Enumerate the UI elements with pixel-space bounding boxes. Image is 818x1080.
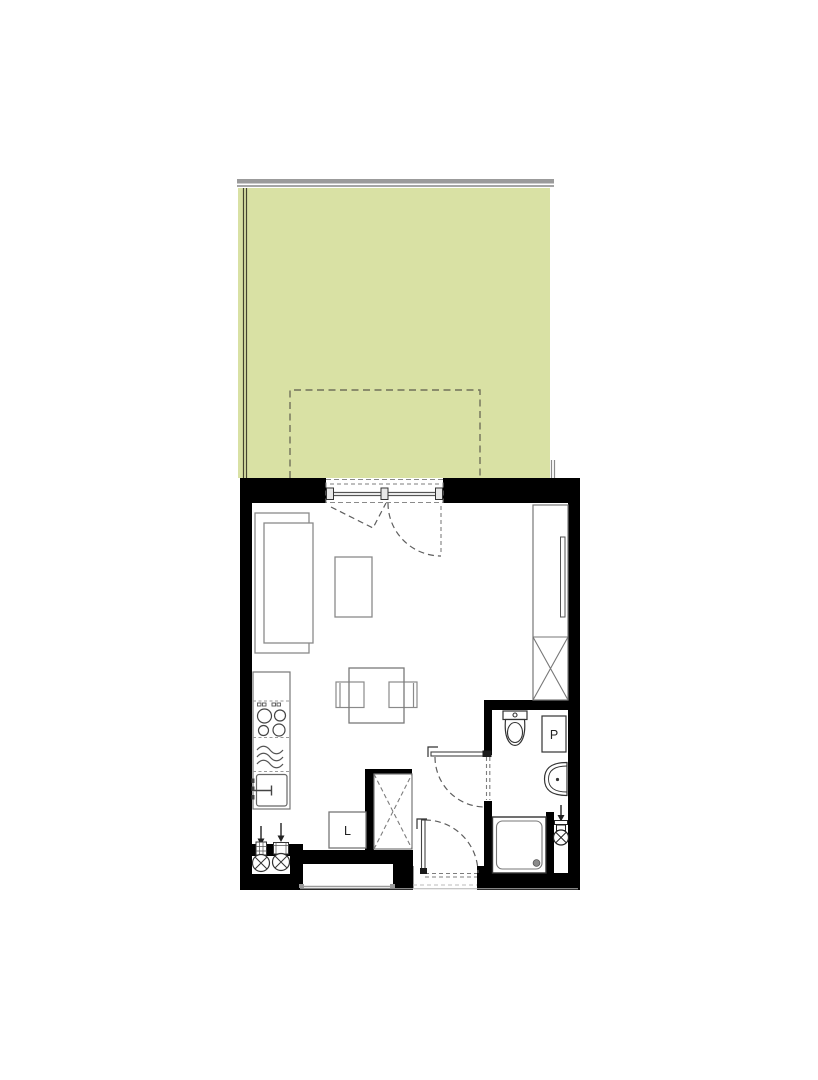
- toilet-cistern: [503, 711, 527, 720]
- garden-lawn: [238, 188, 550, 478]
- wall-top-right: [443, 478, 580, 503]
- bathroom-door-hinge: [483, 751, 492, 758]
- floor-plan-drawing: L: [0, 0, 818, 1080]
- wall-shower-divider: [546, 812, 554, 873]
- bathroom-door-leaf: [431, 752, 484, 756]
- wall-left: [240, 478, 252, 890]
- entrance-door-hinge: [420, 868, 427, 874]
- washing-machine: P: [542, 716, 566, 752]
- coffee-table: [335, 557, 372, 617]
- toilet-bowl: [505, 720, 525, 746]
- closet-column: [533, 505, 568, 700]
- wall-bottom-right: [492, 873, 580, 890]
- mirror-bar: [561, 537, 566, 617]
- hall-wardrobe: [374, 774, 412, 849]
- bathroom-door-opening: [484, 755, 492, 801]
- niche-tick-right: [390, 884, 395, 888]
- washbasin-drain: [556, 778, 559, 781]
- sofa-seat: [264, 523, 313, 643]
- entrance-floor: [413, 874, 477, 890]
- sofa: [255, 513, 313, 653]
- floor-plan: L: [0, 0, 818, 1080]
- wall-right: [568, 478, 580, 890]
- wall-top-left: [240, 478, 326, 503]
- site-boundary-bar: [237, 179, 554, 184]
- entrance-door-leaf: [422, 820, 426, 872]
- shower: [493, 817, 547, 873]
- garden-fence-right: [552, 460, 555, 478]
- wall-bottom-left: [240, 874, 303, 890]
- kitchen-counter: [252, 672, 291, 809]
- shower-drain: [533, 860, 540, 867]
- bottom-wall-niche: [303, 864, 393, 888]
- fridge: L: [329, 812, 366, 848]
- fridge-label: L: [344, 824, 351, 838]
- niche-tick-left: [299, 884, 304, 888]
- washing-machine-label: P: [550, 728, 558, 742]
- garden-area: [237, 179, 555, 478]
- wall-bathroom-north: [484, 700, 580, 710]
